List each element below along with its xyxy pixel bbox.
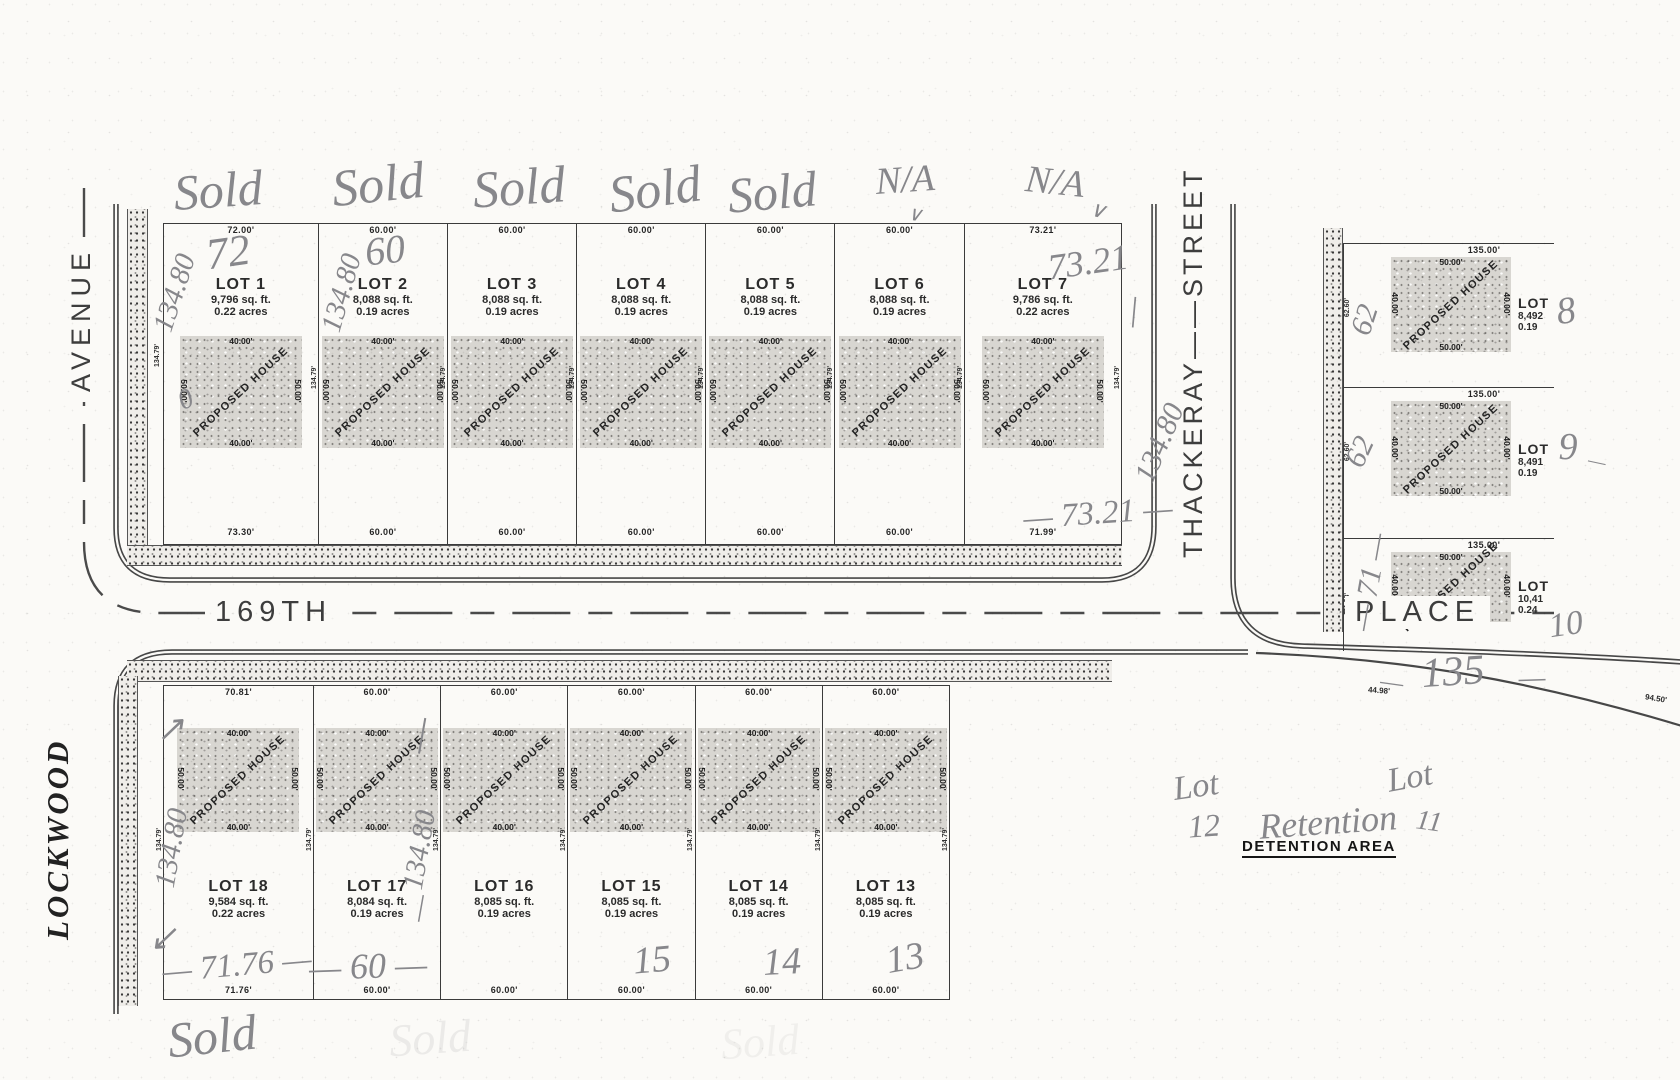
handwritten-note: Sold	[387, 1009, 472, 1068]
sidewalk-band	[127, 209, 148, 547]
handwritten-note: 135	[1420, 646, 1486, 698]
lot-side-dimension: 134.79'	[942, 828, 949, 851]
house-dimension: 50.00'	[556, 749, 566, 809]
lot-top-dimension: 60.00'	[568, 687, 694, 697]
proposed-house-label: PROPOSED HOUSE	[333, 345, 433, 439]
lot-name: LOT 4	[577, 276, 705, 294]
lot-area-sqft: 8,085 sq. ft.	[568, 896, 694, 908]
house-dimension: 50.00'	[1095, 361, 1105, 421]
handwritten-note: 60	[363, 225, 408, 276]
handwritten-note: Sold	[172, 158, 265, 222]
lot-name: LOT 14	[696, 878, 822, 896]
house-dimension: 50.00'	[683, 749, 693, 809]
house-dimension: 50.00'	[429, 749, 439, 809]
handwritten-note: —	[1518, 661, 1546, 696]
proposed-house-label: PROPOSED HOUSE	[720, 345, 820, 439]
handwritten-note: Sold	[719, 1014, 801, 1070]
lot-area-sqft: 8,085 sq. ft.	[441, 896, 567, 908]
proposed-house-label: PROPOSED HOUSE	[591, 345, 691, 439]
house-dimension: 50.00'	[321, 361, 331, 421]
lot-area-sqft: 8,085 sq. ft.	[823, 896, 949, 908]
house-dimension: 40.00'	[451, 438, 573, 448]
house-dimension: 50.00'	[811, 749, 821, 809]
handwritten-note: 15	[631, 936, 673, 983]
lot-label: LOT 189,584 sq. ft.0.22 acres	[164, 878, 313, 920]
lot-label: LOT 148,085 sq. ft.0.19 acres	[696, 878, 822, 920]
sidewalk-band	[127, 545, 1122, 566]
proposed-house: 40.00'40.00'50.00'50.00'PROPOSED HOUSE	[451, 336, 573, 448]
handwritten-note: 12	[1187, 806, 1222, 845]
handwritten-note: — 60 —	[308, 943, 427, 989]
lot-label: LOT 168,085 sq. ft.0.19 acres	[441, 878, 567, 920]
lot-label: LOT 48,088 sq. ft.0.19 acres	[577, 276, 705, 318]
house-dimension: 50.00'	[442, 749, 452, 809]
house-dimension: 50.00'	[708, 361, 718, 421]
lot-name: LOT 13	[823, 878, 949, 896]
handwritten-note: 9	[1559, 425, 1578, 469]
lot-label: LOT 38,088 sq. ft.0.19 acres	[448, 276, 576, 318]
lot: 60.00'LOT 168,085 sq. ft.0.19 acres40.00…	[441, 686, 568, 999]
lot-side-dimension: 134.79'	[698, 366, 705, 389]
lot-bottom-dimension: 60.00'	[319, 527, 447, 537]
house-dimension: 50.00'	[176, 749, 186, 809]
handwritten-note: Lot	[1171, 765, 1221, 809]
house-dimension: 50.00'	[838, 361, 848, 421]
handwritten-note: —	[1112, 295, 1152, 328]
street-label-lockwood: LOCKWOOD	[40, 739, 76, 940]
house-dimension: 40.00'	[1502, 274, 1512, 334]
proposed-house-label: PROPOSED HOUSE	[462, 345, 562, 439]
handwritten-note: —	[400, 892, 438, 924]
lot-depth-dimension: 134.79'	[154, 344, 161, 367]
lot-area-acres: 0.19 acres	[823, 908, 949, 920]
lot-top-dimension: 60.00'	[314, 687, 440, 697]
lot-block-north: 72.00'LOT 19,796 sq. ft.0.22 acres40.00'…	[163, 223, 1122, 545]
lot-bottom-dimension: 60.00'	[577, 527, 705, 537]
lot-area-sqft: 9,786 sq. ft.	[965, 294, 1121, 306]
lot-side-dimension: 134.79'	[440, 366, 447, 389]
proposed-house: 40.00'40.00'50.00'50.00'PROPOSED HOUSE	[322, 336, 444, 448]
lot-bottom-dimension: 73.30'	[164, 527, 318, 537]
lot-top-dimension: 60.00'	[448, 225, 576, 235]
proposed-house: 40.00'40.00'50.00'50.00'PROPOSED HOUSE	[180, 336, 302, 448]
house-dimension: 40.00'	[180, 336, 302, 346]
lot-top-dimension: 60.00'	[823, 687, 949, 697]
house-dimension: 50.00'	[579, 361, 589, 421]
lot-label: LOT 58,088 sq. ft.0.19 acres	[706, 276, 834, 318]
lot: 135.00'LOT 98,4910.1950.00'50.00'40.00'4…	[1344, 388, 1559, 538]
house-dimension: 50.00'	[981, 361, 991, 421]
proposed-house-label: PROPOSED HOUSE	[1401, 402, 1501, 496]
proposed-house: 40.00'40.00'50.00'50.00'PROPOSED HOUSE	[982, 336, 1104, 448]
street-label-thackeray: THACKERAY——STREET	[1178, 166, 1209, 558]
lot-bottom-dimension: 60.00'	[706, 527, 834, 537]
lot-top-dimension: 73.21'	[965, 225, 1121, 235]
house-dimension: 40.00'	[1502, 556, 1512, 616]
house-dimension: 40.00'	[180, 438, 302, 448]
lot-side-dimension: 134.79'	[1114, 366, 1121, 389]
house-dimension: 40.00'	[1390, 418, 1400, 478]
house-dimension: 50.00'	[824, 749, 834, 809]
proposed-house-label: PROPOSED HOUSE	[1401, 257, 1501, 351]
proposed-house: 40.00'40.00'50.00'50.00'PROPOSED HOUSE	[839, 336, 961, 448]
lot-top-dimension: 60.00'	[706, 225, 834, 235]
lot-area-acres: 0.19 acres	[568, 908, 694, 920]
lot-bottom-dimension: 60.00'	[568, 985, 694, 995]
lot-side-dimension: 134.79'	[560, 828, 567, 851]
house-dimension: 40.00'	[1390, 274, 1400, 334]
house-dimension: 50.00'	[290, 749, 300, 809]
lot-name: LOT 5	[706, 276, 834, 294]
house-dimension: 50.00'	[450, 361, 460, 421]
lot-side-dimension: 134.79'	[957, 366, 964, 389]
handwritten-note: ∨	[906, 201, 924, 228]
lot-area-acres: 0.22 acres	[164, 908, 313, 920]
proposed-house: 40.00'40.00'50.00'50.00'PROPOSED HOUSE	[825, 728, 947, 832]
handwritten-note: 13	[882, 933, 927, 983]
lot-area-acres: 0.19 acres	[577, 306, 705, 318]
lot-area-sqft: 8,088 sq. ft.	[448, 294, 576, 306]
sidewalk-band	[118, 676, 138, 1006]
lot-top-dimension: 60.00'	[696, 687, 822, 697]
lot-name: LOT 3	[448, 276, 576, 294]
proposed-house-label: PROPOSED HOUSE	[581, 733, 681, 827]
lot-top-dimension: 60.00'	[835, 225, 963, 235]
proposed-house: 40.00'40.00'50.00'50.00'PROPOSED HOUSE	[177, 728, 299, 832]
handwritten-note: Sold	[725, 159, 819, 225]
lot-name: LOT 18	[164, 878, 313, 896]
lot-side-dimension: 134.79'	[569, 366, 576, 389]
handwritten-note: Sold	[329, 151, 427, 219]
proposed-house-label: PROPOSED HOUSE	[993, 345, 1093, 439]
page-cut-edge	[1554, 205, 1680, 641]
lot-top-dimension: 70.81'	[164, 687, 313, 697]
handwritten-note: 10	[1547, 604, 1586, 646]
lot-name: LOT 15	[568, 878, 694, 896]
proposed-house-label: PROPOSED HOUSE	[709, 733, 809, 827]
house-dimension: 50.00'	[569, 749, 579, 809]
house-dimension: 50.00'	[697, 749, 707, 809]
handwritten-note: —	[1378, 666, 1405, 699]
house-dimension: 50.00'	[293, 361, 303, 421]
lot: 60.00'LOT 148,085 sq. ft.0.19 acres40.00…	[696, 686, 823, 999]
house-dimension: 50.00'	[938, 749, 948, 809]
handwritten-note: N/A	[1023, 157, 1086, 207]
proposed-house: 40.00'40.00'50.00'50.00'PROPOSED HOUSE	[698, 728, 820, 832]
lot-name: LOT 16	[441, 878, 567, 896]
handwritten-note: 14	[762, 939, 802, 985]
handwritten-note: ↗	[154, 708, 186, 750]
handwritten-note: Lot	[1384, 755, 1435, 800]
lot-area-sqft: 8,088 sq. ft.	[835, 294, 963, 306]
proposed-house-label: PROPOSED HOUSE	[454, 733, 554, 827]
proposed-house: 40.00'40.00'50.00'50.00'PROPOSED HOUSE	[709, 336, 831, 448]
proposed-house-label: PROPOSED HOUSE	[188, 733, 288, 827]
proposed-house: 40.00'40.00'50.00'50.00'PROPOSED HOUSE	[570, 728, 692, 832]
handwritten-note: 11	[1414, 804, 1444, 839]
lot-label: LOT 79,786 sq. ft.0.22 acres	[965, 276, 1121, 318]
proposed-house-label: PROPOSED HOUSE	[191, 345, 291, 439]
house-dimension: 50.00'	[315, 749, 325, 809]
house-dimension: 40.00'	[1502, 418, 1512, 478]
lot-top-dimension: 135.00'	[1434, 245, 1534, 255]
proposed-house: 50.00'50.00'40.00'40.00'PROPOSED HOUSE	[1391, 401, 1511, 496]
handwritten-note: N/A	[874, 156, 936, 204]
lot-top-dimension: 60.00'	[441, 687, 567, 697]
lot-side-dimension: 134.79'	[688, 828, 695, 851]
handwritten-note: Sold	[165, 1003, 259, 1070]
lot-bottom-dimension: 60.00'	[441, 985, 567, 995]
lot-area-acres: 0.19 acres	[706, 306, 834, 318]
house-dimension: 40.00'	[982, 438, 1104, 448]
handwritten-note: Sold	[471, 155, 567, 220]
lot-bottom-dimension: 60.00'	[448, 527, 576, 537]
house-dimension: 40.00'	[322, 336, 444, 346]
lot-label: LOT 68,088 sq. ft.0.19 acres	[835, 276, 963, 318]
proposed-house-label: PROPOSED HOUSE	[836, 733, 936, 827]
proposed-house: 40.00'40.00'50.00'50.00'PROPOSED HOUSE	[443, 728, 565, 832]
lot-side-dimension: 134.79'	[815, 828, 822, 851]
proposed-house-label: PROPOSED HOUSE	[850, 345, 950, 439]
house-dimension: 40.00'	[839, 438, 961, 448]
handwritten-note: 72	[203, 224, 254, 281]
lot-area-sqft: 9,584 sq. ft.	[164, 896, 313, 908]
lot-label: LOT 138,085 sq. ft.0.19 acres	[823, 878, 949, 920]
proposed-house: 40.00'40.00'50.00'50.00'PROPOSED HOUSE	[580, 336, 702, 448]
house-dimension: 40.00'	[709, 336, 831, 346]
house-dimension: 40.00'	[451, 336, 573, 346]
lot: 60.00'LOT 38,088 sq. ft.0.19 acres40.00'…	[448, 224, 577, 544]
lot-area-sqft: 8,088 sq. ft.	[706, 294, 834, 306]
lot: 60.00'LOT 58,088 sq. ft.0.19 acres40.00'…	[706, 224, 835, 544]
lot-side-dimension: 134.79'	[827, 366, 834, 389]
lot: 60.00'LOT 68,088 sq. ft.0.19 acres40.00'…	[835, 224, 964, 544]
proposed-house: 50.00'50.00'40.00'40.00'PROPOSED HOUSE	[1391, 257, 1511, 352]
street-label-169th: 169TH	[205, 596, 342, 629]
lot-side-dimension: 134.79'	[311, 366, 318, 389]
lot-top-dimension: 60.00'	[577, 225, 705, 235]
house-dimension: 40.00'	[322, 438, 444, 448]
plat-map-scan: 72.00'LOT 19,796 sq. ft.0.22 acres40.00'…	[0, 0, 1680, 1080]
lot-bottom-dimension: 60.00'	[823, 985, 949, 995]
house-dimension: 40.00'	[580, 336, 702, 346]
lot-bottom-dimension: 60.00'	[696, 985, 822, 995]
lot-area-sqft: 8,085 sq. ft.	[696, 896, 822, 908]
lot-label: LOT 158,085 sq. ft.0.19 acres	[568, 878, 694, 920]
lot-area-acres: 0.19 acres	[696, 908, 822, 920]
lot-top-dimension: 135.00'	[1434, 389, 1534, 399]
lot-side-dimension: 134.79'	[306, 828, 313, 851]
lot-name: LOT 6	[835, 276, 963, 294]
lot-area-acres: 0.22 acres	[965, 306, 1121, 318]
sidewalk-band	[127, 660, 1112, 682]
street-label-avenue: AVENUE	[66, 237, 97, 402]
house-dimension: 40.00'	[982, 336, 1104, 346]
lot-area-acres: 0.19 acres	[441, 908, 567, 920]
lot-bottom-dimension: 60.00'	[835, 527, 963, 537]
lot-area-acres: 0.19 acres	[835, 306, 963, 318]
lot: 60.00'LOT 48,088 sq. ft.0.19 acres40.00'…	[577, 224, 706, 544]
lot-area-acres: 0.19 acres	[448, 306, 576, 318]
sidewalk-band	[1323, 228, 1343, 632]
lot-area-sqft: 8,088 sq. ft.	[577, 294, 705, 306]
